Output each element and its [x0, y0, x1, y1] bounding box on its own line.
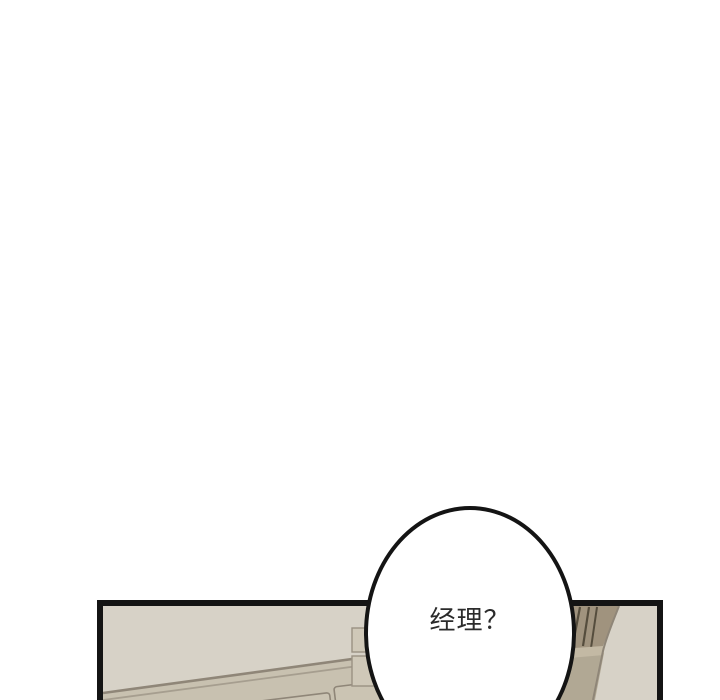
speech-bubble: 经理？ [364, 506, 576, 700]
speech-bubble-text: 经理？ [429, 605, 510, 636]
webtoon-page: 经理？ [0, 0, 720, 700]
